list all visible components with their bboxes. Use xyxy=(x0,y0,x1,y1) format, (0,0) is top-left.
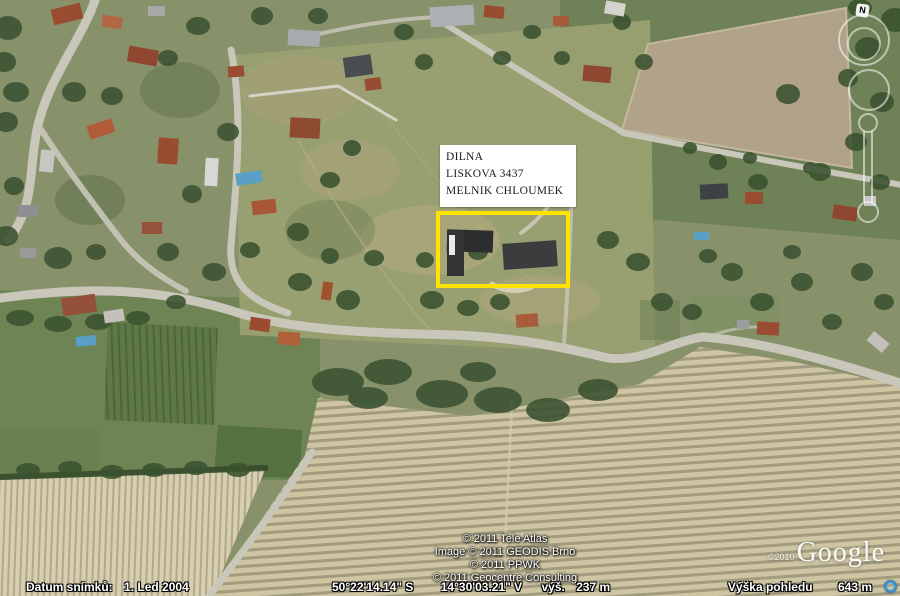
imagery-date: Datum snímků: 1. Led 2004 xyxy=(26,580,189,594)
map-attribution: © 2011 Tele Atlas Image © 2011 GEODIS Br… xyxy=(355,533,655,585)
latitude-value: 50°22'14.14" S xyxy=(332,580,413,594)
property-label-line: MELNIK CHLOUMEK xyxy=(446,183,572,200)
map-viewport[interactable]: DILNA LISKOVA 3437 MELNIK CHLOUMEK N © 2… xyxy=(0,0,900,596)
google-copyright: ©2010 xyxy=(768,552,795,562)
imagery-date-label: Datum snímků: xyxy=(26,580,113,594)
zoom-slider-track-icon xyxy=(864,131,872,202)
eye-altitude: Výška pohledu 643 m xyxy=(728,580,872,594)
property-label-line: DILNA xyxy=(446,149,572,166)
imagery-date-value: 1. Led 2004 xyxy=(124,580,189,594)
attribution-line: © 2011 PPWK xyxy=(355,559,655,572)
longitude-value: 14°30'03.21" V xyxy=(441,580,522,594)
property-highlight-rectangle xyxy=(436,211,570,288)
look-ring-icon xyxy=(839,15,889,65)
eye-altitude-label: Výška pohledu xyxy=(728,580,813,594)
streaming-indicator-icon xyxy=(884,580,897,593)
google-earth-window: DILNA LISKOVA 3437 MELNIK CHLOUMEK N © 2… xyxy=(0,0,900,596)
pointer-coordinates: 50°22'14.14" S 14°30'03.21" V výš. 237 m xyxy=(332,580,610,594)
attribution-line: Image © 2011 GEODIS Brno xyxy=(355,546,655,559)
move-joystick-icon xyxy=(849,70,889,110)
elevation-value: 237 m xyxy=(576,580,610,594)
attribution-line: © 2011 Tele Atlas xyxy=(355,533,655,546)
property-label-box[interactable]: DILNA LISKOVA 3437 MELNIK CHLOUMEK xyxy=(440,145,576,207)
elevation-label: výš. xyxy=(542,580,565,594)
property-label-line: LISKOVA 3437 xyxy=(446,166,572,183)
zoom-slider-thumb-icon xyxy=(858,202,878,222)
google-logo: Google xyxy=(797,539,885,567)
google-branding: ©2010 Google xyxy=(768,539,885,567)
eye-altitude-value: 643 m xyxy=(838,580,872,594)
zoom-slider-top-icon xyxy=(859,114,877,132)
compass-north-button[interactable]: N xyxy=(855,3,870,18)
navigation-controls[interactable] xyxy=(830,0,900,240)
satellite-imagery xyxy=(0,0,900,596)
look-ring-inner-icon xyxy=(848,28,880,60)
